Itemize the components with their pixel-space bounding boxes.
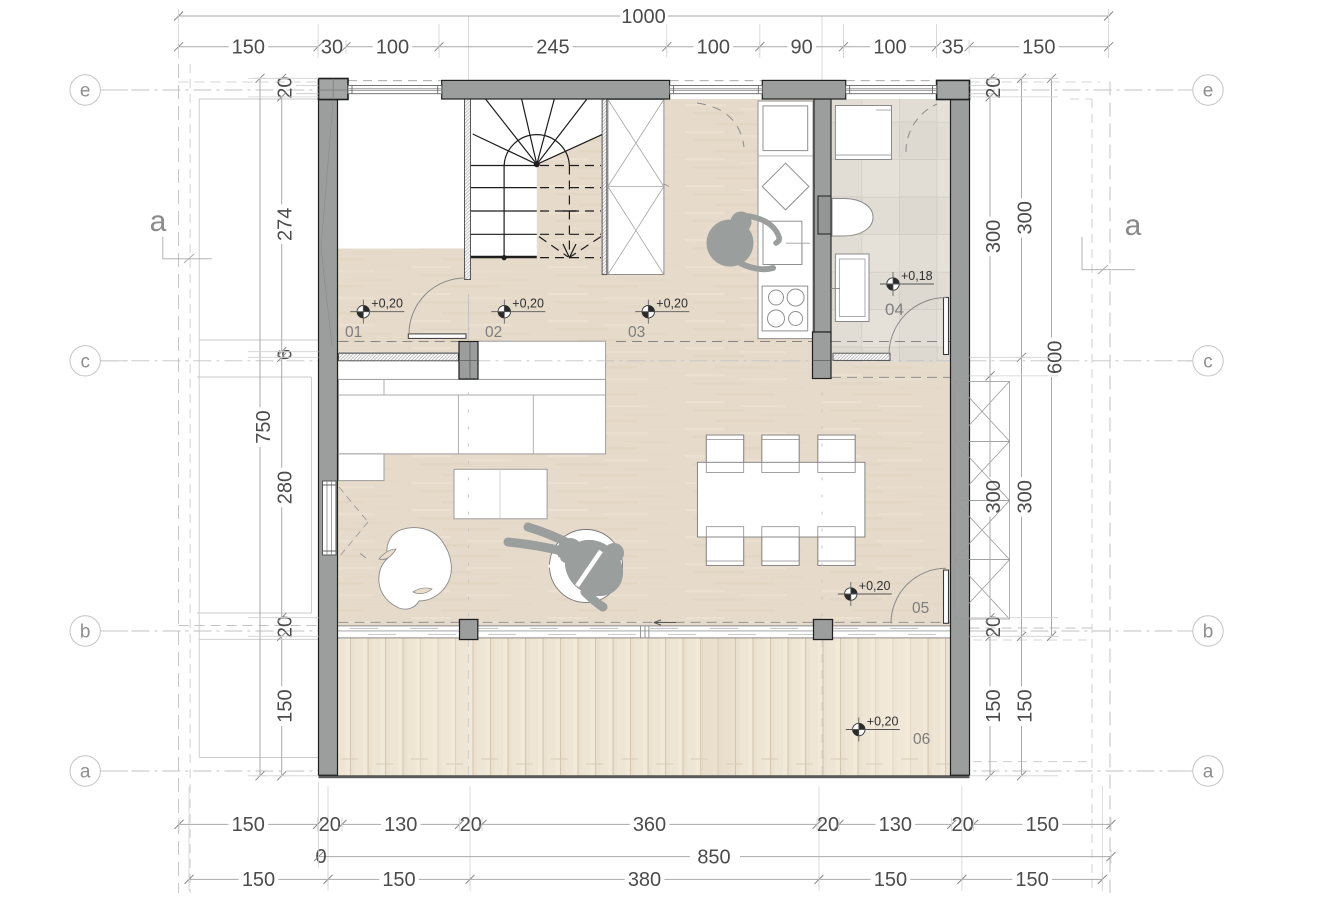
- svg-text:6: 6: [275, 349, 297, 360]
- svg-text:150: 150: [232, 814, 265, 836]
- svg-text:a: a: [80, 762, 91, 783]
- svg-text:04: 04: [885, 300, 904, 319]
- svg-text:+0,20: +0,20: [371, 297, 403, 311]
- svg-text:300: 300: [983, 480, 1005, 513]
- svg-text:b: b: [80, 622, 91, 643]
- svg-text:a: a: [150, 205, 167, 238]
- svg-text:150: 150: [275, 689, 297, 722]
- svg-text:150: 150: [1015, 689, 1037, 722]
- svg-text:c: c: [1203, 351, 1213, 372]
- svg-text:750: 750: [253, 410, 275, 443]
- svg-text:100: 100: [697, 37, 730, 59]
- svg-text:300: 300: [983, 220, 1005, 253]
- svg-text:20: 20: [460, 814, 482, 836]
- svg-text:90: 90: [791, 37, 813, 59]
- svg-text:300: 300: [1015, 480, 1037, 513]
- svg-text:130: 130: [384, 814, 417, 836]
- svg-text:20: 20: [275, 616, 297, 638]
- svg-text:150: 150: [1015, 869, 1048, 891]
- svg-text:e: e: [1203, 81, 1214, 102]
- svg-text:20: 20: [983, 76, 1005, 98]
- svg-text:a: a: [1203, 762, 1214, 783]
- svg-text:30: 30: [321, 37, 343, 59]
- svg-text:02: 02: [485, 324, 502, 341]
- svg-text:20: 20: [983, 616, 1005, 638]
- svg-text:+0,18: +0,18: [901, 269, 933, 283]
- svg-text:20: 20: [817, 814, 839, 836]
- svg-text:100: 100: [873, 37, 906, 59]
- svg-text:20: 20: [952, 814, 974, 836]
- svg-text:+0,20: +0,20: [512, 297, 544, 311]
- svg-text:150: 150: [242, 869, 275, 891]
- svg-text:150: 150: [1022, 37, 1055, 59]
- svg-text:280: 280: [275, 471, 297, 504]
- svg-text:b: b: [1203, 622, 1214, 643]
- svg-text:20: 20: [275, 76, 297, 98]
- svg-text:245: 245: [536, 37, 569, 59]
- svg-text:01: 01: [345, 324, 362, 341]
- svg-text:0: 0: [315, 846, 326, 868]
- svg-text:20: 20: [319, 814, 341, 836]
- svg-text:1000: 1000: [621, 6, 666, 28]
- svg-text:+0,20: +0,20: [859, 579, 891, 593]
- svg-text:150: 150: [382, 869, 415, 891]
- svg-text:300: 300: [1015, 201, 1037, 234]
- svg-text:274: 274: [275, 208, 297, 241]
- svg-text:850: 850: [697, 846, 730, 868]
- svg-text:380: 380: [628, 869, 661, 891]
- svg-text:05: 05: [912, 600, 929, 617]
- svg-text:100: 100: [376, 37, 409, 59]
- svg-text:150: 150: [232, 37, 265, 59]
- svg-text:35: 35: [942, 37, 964, 59]
- svg-text:06: 06: [913, 731, 930, 748]
- svg-text:+0,20: +0,20: [656, 297, 688, 311]
- svg-text:03: 03: [628, 324, 645, 341]
- svg-text:+0,20: +0,20: [867, 715, 899, 729]
- svg-text:c: c: [80, 351, 90, 372]
- svg-text:150: 150: [874, 869, 907, 891]
- svg-text:130: 130: [879, 814, 912, 836]
- svg-text:360: 360: [633, 814, 666, 836]
- svg-text:e: e: [80, 81, 91, 102]
- svg-text:150: 150: [983, 689, 1005, 722]
- svg-text:150: 150: [1026, 814, 1059, 836]
- svg-text:a: a: [1125, 209, 1142, 242]
